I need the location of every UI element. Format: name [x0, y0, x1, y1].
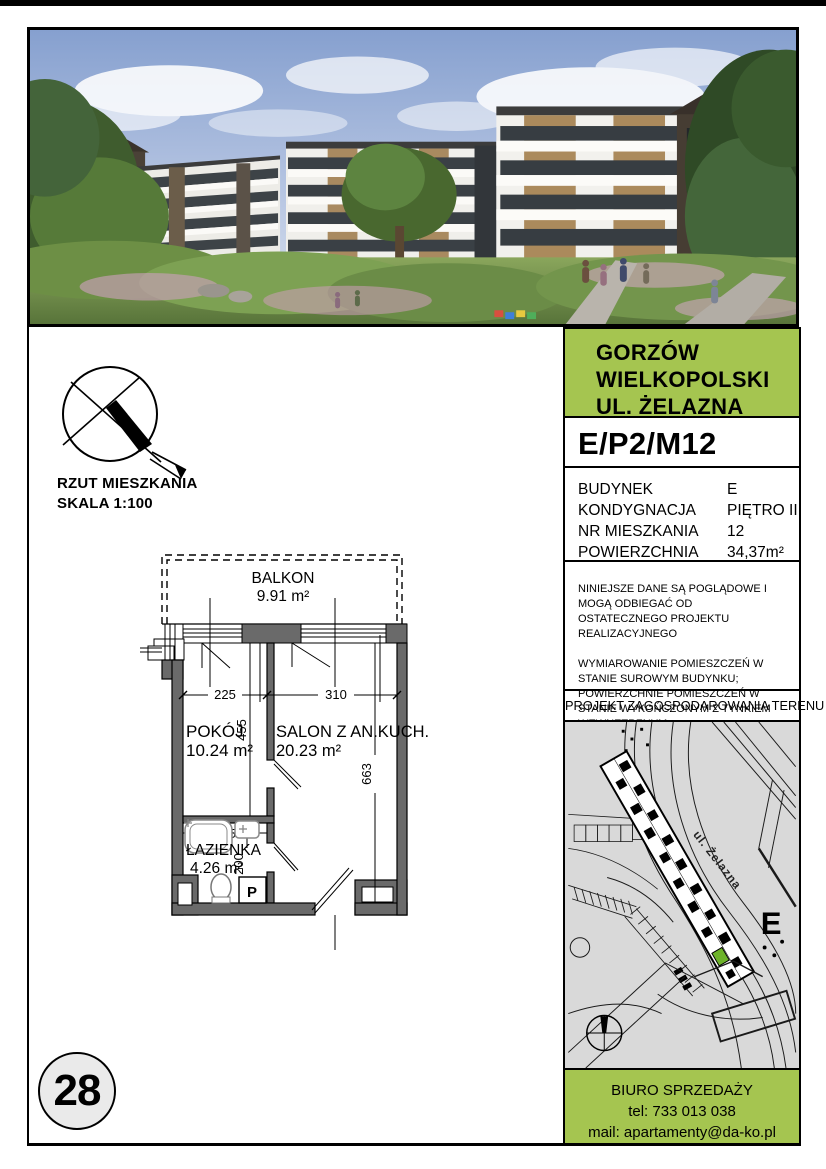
disclaimer: NINIEJSZE DANE SĄ POGLĄDOWE I MOGĄ ODBIE… — [565, 562, 799, 691]
unit-code: E/P2/M12 — [565, 418, 799, 468]
disclaimer-paragraph-1: NINIEJSZE DANE SĄ POGLĄDOWE I MOGĄ ODBIE… — [578, 582, 784, 642]
page-number-badge: 28 — [38, 1052, 116, 1130]
detail-label: BUDYNEK — [578, 479, 727, 500]
info-sidebar: GORZÓW WIELKOPOLSKI UL. ŻELAZNA E/P2/M12… — [563, 327, 801, 1145]
detail-row-nr-mieszkania: NR MIESZKANIA 12 — [578, 521, 799, 542]
dim-salon-height: 663 — [359, 763, 374, 785]
building-render-illustration — [30, 30, 796, 324]
detail-label: NR MIESZKANIA — [578, 521, 727, 542]
room-balkon-area: 9.91 m² — [257, 588, 310, 605]
room-lazienka-name: ŁAZIENKA — [186, 842, 262, 859]
room-pokoj-name: POKÓJ — [186, 722, 244, 741]
location-line3: UL. ŻELAZNA — [596, 393, 791, 420]
page-top-band — [0, 0, 826, 6]
interior-door-swings — [274, 760, 353, 950]
location-header: GORZÓW WIELKOPOLSKI UL. ŻELAZNA — [565, 329, 799, 418]
map-north-icon — [587, 1016, 622, 1051]
location-line1: GORZÓW — [596, 339, 791, 366]
unit-details: BUDYNEK E KONDYGNACJA PIĘTRO II NR MIESZ… — [565, 468, 799, 562]
dim-salon-width: 310 — [325, 687, 347, 702]
window-bottom-right — [362, 887, 393, 902]
detail-value: E — [727, 479, 737, 500]
detail-row-powierzchnia: POWIERZCHNIA 34,37m² — [578, 542, 799, 563]
detail-row-kondygnacja: KONDYGNACJA PIĘTRO II — [578, 500, 799, 521]
room-salon-area: 20.23 m² — [276, 742, 342, 760]
detail-label: POWIERZCHNIA — [578, 542, 727, 563]
contact-email: mail: apartamenty@da-ko.pl — [565, 1122, 799, 1143]
detail-value: 12 — [727, 521, 744, 542]
contact-phone: tel: 733 013 038 — [565, 1101, 799, 1122]
detail-row-budynek: BUDYNEK E — [578, 479, 799, 500]
detail-value: PIĘTRO II — [727, 500, 798, 521]
balcony-door-swings — [202, 643, 330, 668]
floor-plan-drawing: 225 310 455 663 225 200 — [140, 540, 440, 952]
site-plan-title: PROJEKT ZAGOSPODAROWANIA TERENU — [565, 691, 799, 722]
plan-title: RZUT MIESZKANIA SKALA 1:100 — [57, 474, 198, 514]
building-render-photo — [27, 27, 799, 327]
plan-title-line1: RZUT MIESZKANIA — [57, 474, 198, 494]
dim-horizontal: 225 310 — [179, 687, 401, 702]
detail-value: 34,37m² — [727, 542, 784, 563]
location-line2: WIELKOPOLSKI — [596, 366, 791, 393]
washer-label: P — [247, 884, 257, 901]
building-right — [496, 106, 694, 275]
floor-plan: 225 310 455 663 225 200 — [140, 540, 440, 952]
sales-office-contact: BIURO SPRZEDAŻY tel: 733 013 038 mail: a… — [565, 1070, 799, 1143]
toilet-icon — [211, 874, 231, 903]
room-lazienka-area: 4.26 m² — [190, 860, 243, 877]
site-plan-drawing: ul. Żelazna E — [565, 722, 799, 1068]
north-compass-icon — [55, 352, 200, 482]
room-balkon-name: BALKON — [252, 570, 315, 587]
extension-lines — [175, 598, 380, 702]
room-salon-name: SALON Z AN.KUCH. — [276, 723, 429, 741]
page-left-border — [27, 327, 29, 1145]
site-plan-map: ul. Żelazna E — [565, 722, 799, 1070]
plan-title-line2: SKALA 1:100 — [57, 494, 198, 514]
contact-title: BIURO SPRZEDAŻY — [565, 1080, 799, 1101]
detail-label: KONDYGNACJA — [578, 500, 727, 521]
building-e-label: E — [761, 906, 782, 941]
dim-pokoj-width: 225 — [214, 687, 236, 702]
window-bottom-left — [178, 883, 192, 905]
room-pokoj-area: 10.24 m² — [186, 741, 253, 760]
